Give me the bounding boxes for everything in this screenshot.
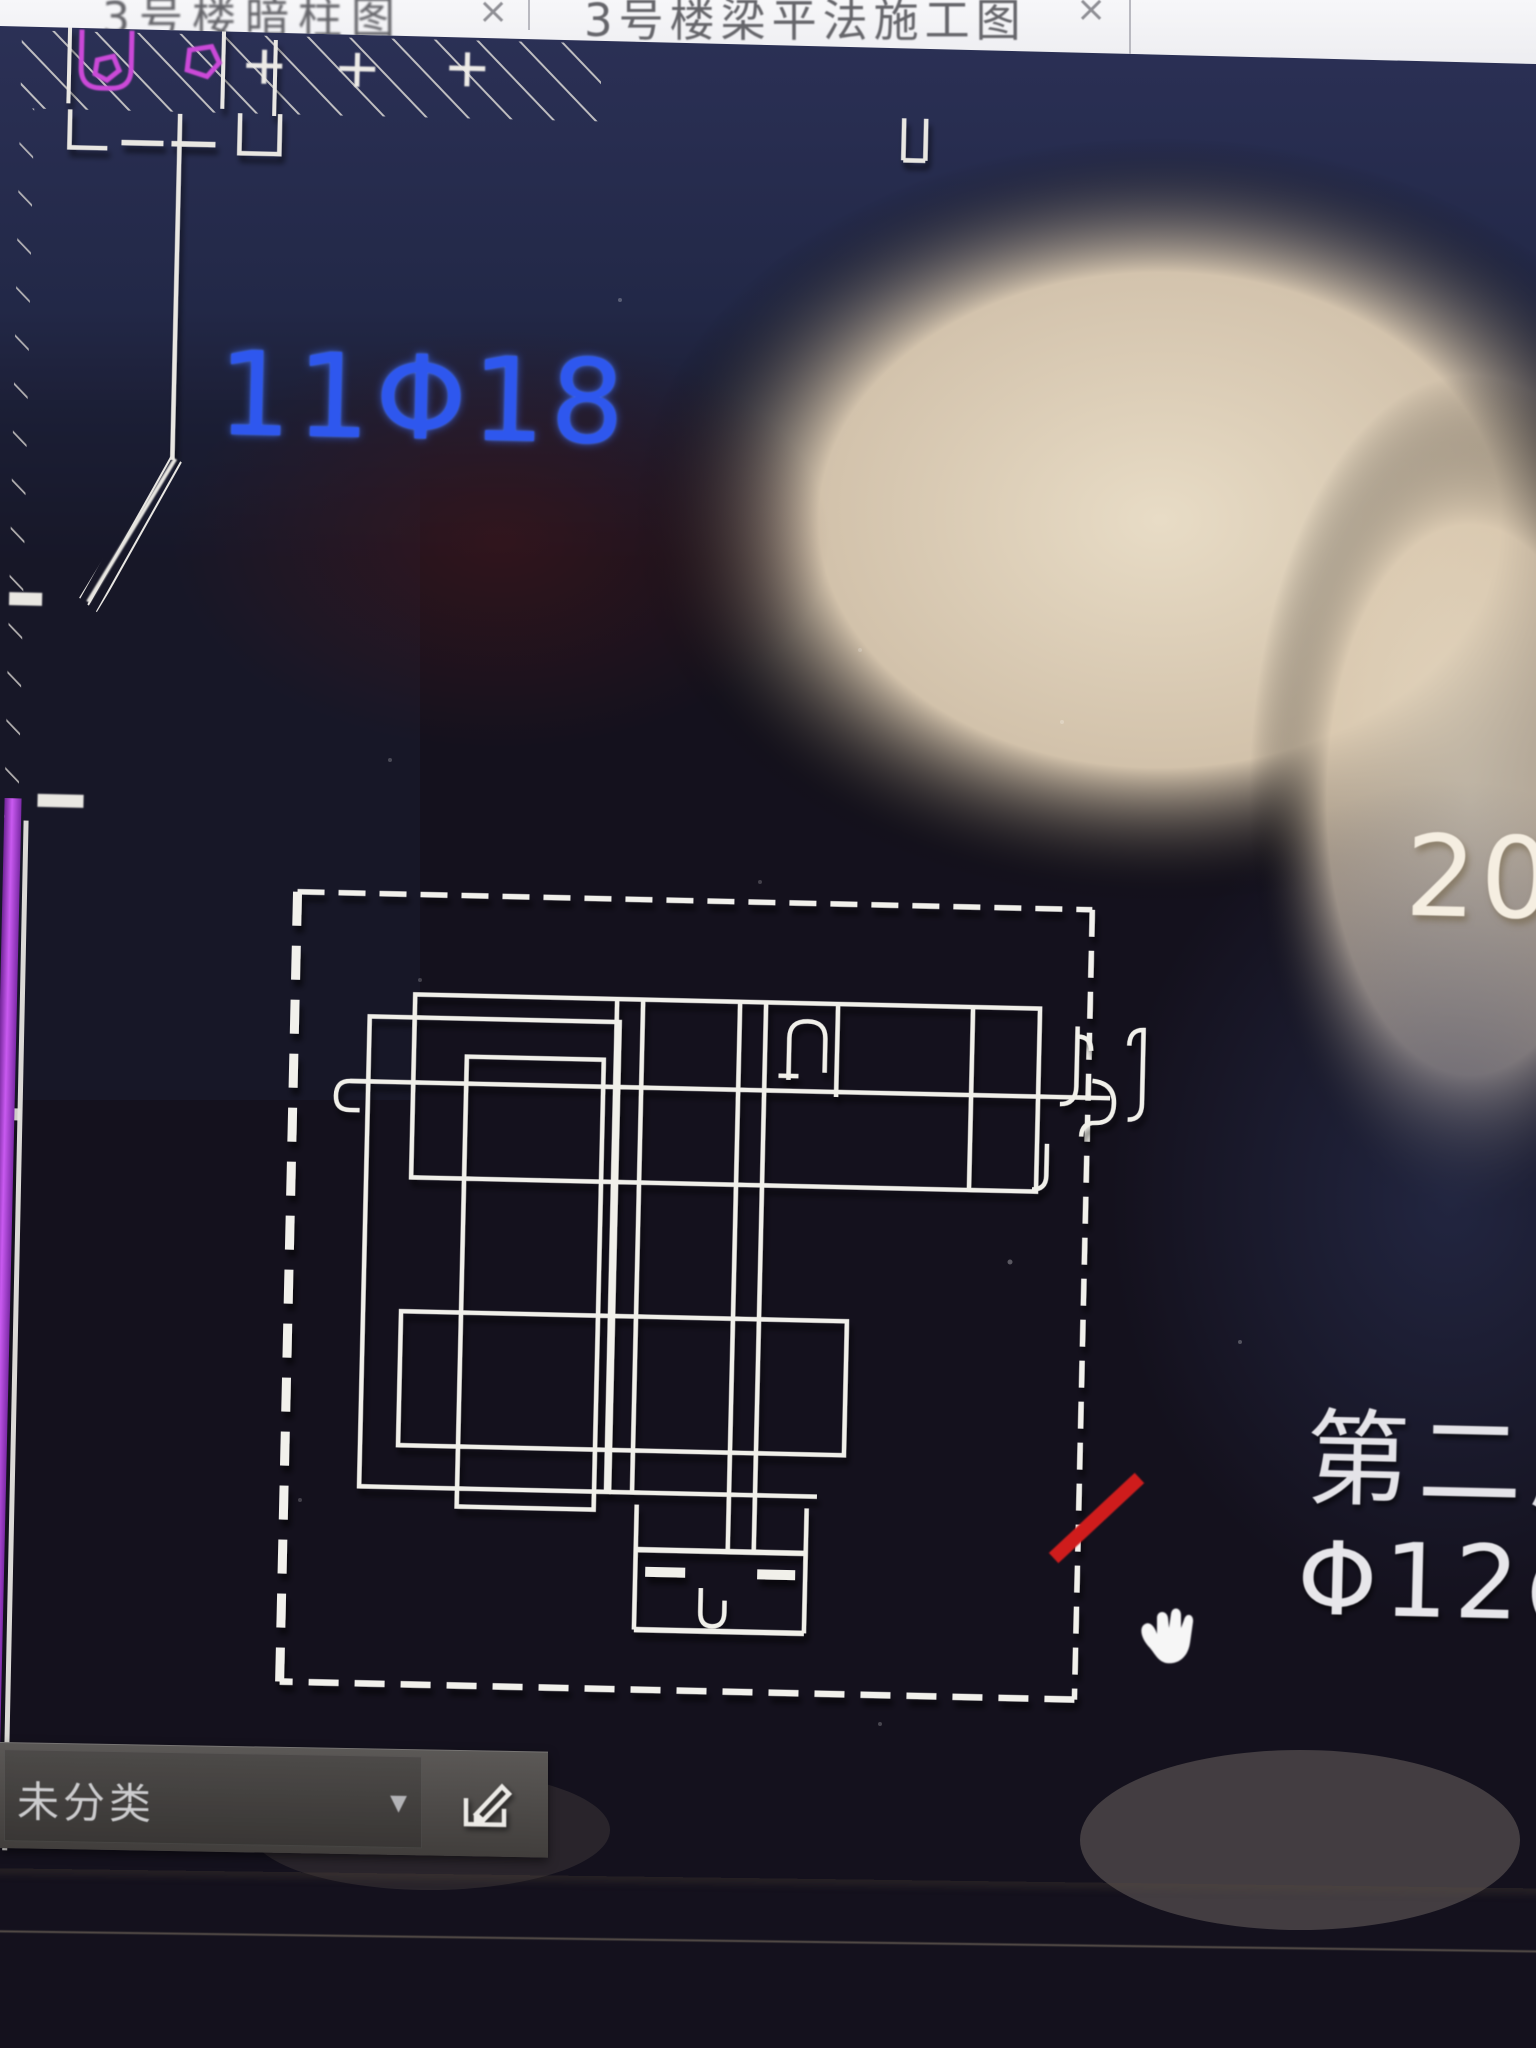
- category-dropdown[interactable]: 未分类 ▼: [4, 1749, 422, 1848]
- tab-separator: [528, 0, 530, 30]
- edit-icon: [454, 1772, 516, 1835]
- category-value: 未分类: [17, 1768, 155, 1831]
- bezel-seam-line: [0, 1930, 1536, 1953]
- tab-beam-drawing[interactable]: 3号楼梁平法施工图: [584, 0, 1027, 49]
- edit-category-button[interactable]: [446, 1763, 524, 1844]
- chevron-down-icon[interactable]: ▼: [390, 1791, 407, 1816]
- tab-separator: [1129, 0, 1131, 54]
- monitor-bezel: [0, 1868, 1536, 2048]
- classification-panel: 未分类 ▼: [0, 1742, 548, 1858]
- canvas-background: [0, 0, 1536, 2048]
- screen-photo: 11Φ18 20- 第二层 Φ12@ 3号楼暗柱图 × 3号楼梁平法施工图 × …: [0, 0, 1536, 2048]
- close-icon[interactable]: ×: [1076, 0, 1106, 28]
- close-icon[interactable]: ×: [478, 0, 508, 30]
- cad-canvas[interactable]: [0, 0, 1536, 2048]
- top-right-underline: [1395, 935, 1536, 938]
